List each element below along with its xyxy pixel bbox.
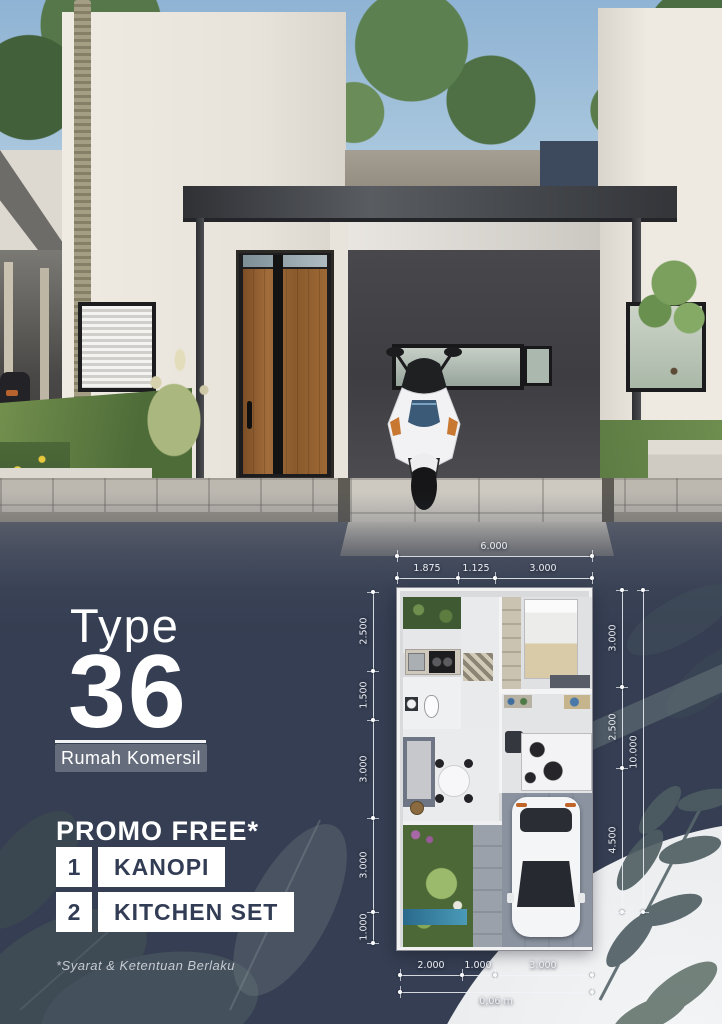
car-tail-light bbox=[565, 803, 576, 807]
dim-bottom-total: 0,06 m bbox=[479, 996, 512, 1007]
dim-top-total: 6.000 bbox=[480, 541, 507, 552]
dim-marker bbox=[616, 912, 628, 913]
plan-terrace-path bbox=[473, 825, 502, 947]
dim-marker bbox=[367, 592, 379, 593]
plan-car bbox=[512, 797, 580, 937]
dim-top-seg-3: 3.000 bbox=[529, 563, 556, 574]
dim-bottom-seg-2: 1.000 bbox=[464, 960, 491, 971]
plan-pond bbox=[403, 909, 467, 925]
flat-canopy-roof bbox=[183, 186, 677, 222]
front-door bbox=[236, 250, 334, 480]
dim-marker bbox=[397, 572, 398, 584]
dim-marker bbox=[367, 912, 379, 913]
dim-marker bbox=[367, 671, 379, 672]
plan-desk bbox=[564, 695, 590, 709]
plan-bed-2 bbox=[521, 733, 592, 791]
plan-bed-1 bbox=[524, 599, 578, 679]
carport-ceiling bbox=[346, 222, 600, 250]
car-tail-light bbox=[516, 803, 527, 807]
floor-plan bbox=[397, 588, 592, 950]
dim-marker bbox=[637, 912, 649, 913]
plan-toilet bbox=[424, 695, 439, 718]
dim-marker bbox=[616, 768, 628, 769]
dim-marker bbox=[616, 687, 628, 688]
car-rear-glass bbox=[520, 808, 572, 832]
driveway-ramp bbox=[340, 522, 614, 556]
dim-marker bbox=[592, 986, 593, 998]
plan-basket bbox=[410, 801, 424, 815]
promo-item-number: 1 bbox=[56, 847, 92, 887]
dim-marker bbox=[462, 969, 463, 981]
plan-wardrobe bbox=[501, 597, 521, 689]
door-transom-glass bbox=[243, 255, 327, 267]
dim-marker bbox=[495, 572, 496, 584]
motorcycle bbox=[376, 334, 472, 512]
house-render-photo bbox=[0, 0, 722, 648]
promo-item-row: 1 KANOPI bbox=[56, 847, 225, 887]
dim-left-seg-2: 1.500 bbox=[359, 681, 370, 708]
car-mirror bbox=[507, 893, 514, 903]
dim-line-top-total bbox=[397, 556, 592, 557]
plan-doormat bbox=[463, 653, 493, 681]
dim-marker bbox=[637, 590, 649, 591]
plan-washbasin bbox=[405, 697, 418, 711]
dim-marker bbox=[367, 720, 379, 721]
dim-marker bbox=[367, 818, 379, 819]
dim-line-left bbox=[373, 592, 374, 943]
dim-right-seg-1: 3.000 bbox=[608, 624, 619, 651]
plan-front-garden bbox=[403, 825, 473, 947]
property-promo-poster: Type 36 Rumah Komersil PROMO FREE* 1 KAN… bbox=[0, 0, 722, 1024]
dim-marker bbox=[592, 969, 593, 981]
small-tree bbox=[636, 248, 712, 388]
plan-bedroom-bench bbox=[550, 675, 590, 688]
dim-bottom-seg-3: 3.000 bbox=[529, 960, 556, 971]
dim-top-seg-2: 1.125 bbox=[462, 563, 489, 574]
door-black-stripe bbox=[273, 255, 283, 474]
street-curb bbox=[0, 512, 338, 522]
plan-kitchen-stove bbox=[429, 651, 455, 673]
dim-marker bbox=[458, 572, 459, 584]
dim-right-total: 10.000 bbox=[629, 735, 640, 768]
plan-dining-chair bbox=[464, 759, 473, 768]
dim-marker bbox=[495, 969, 496, 981]
dim-right-seg-3: 4.500 bbox=[608, 826, 619, 853]
door-handle bbox=[247, 401, 252, 429]
promo-item-label: KANOPI bbox=[98, 847, 225, 887]
dim-marker bbox=[400, 986, 401, 998]
dim-left-seg-1: 2.500 bbox=[359, 617, 370, 644]
pampas-grass bbox=[120, 330, 240, 480]
dim-marker bbox=[400, 969, 401, 981]
dim-marker bbox=[592, 572, 593, 584]
wooden-door-leaf bbox=[243, 269, 327, 474]
plan-dining-chair bbox=[435, 794, 444, 803]
carport-horizontal-window-small bbox=[524, 346, 552, 386]
promo-item-number: 2 bbox=[56, 892, 92, 932]
terms-disclaimer: *Syarat & Ketentuan Berlaku bbox=[56, 958, 235, 973]
promo-item-label: KITCHEN SET bbox=[98, 892, 294, 932]
category-badge: Rumah Komersil bbox=[55, 744, 207, 772]
plan-dining-chair bbox=[464, 794, 473, 803]
car-mirror bbox=[578, 893, 585, 903]
dim-left-seg-3: 3.000 bbox=[359, 755, 370, 782]
promo-item-row: 2 KITCHEN SET bbox=[56, 892, 294, 932]
dim-marker bbox=[397, 550, 398, 562]
car-windshield bbox=[517, 861, 575, 907]
dim-top-seg-1: 1.875 bbox=[413, 563, 440, 574]
plan-shelf bbox=[504, 695, 532, 708]
plan-wall bbox=[499, 597, 502, 793]
street-curb bbox=[614, 512, 722, 522]
dim-left-seg-5: 1.000 bbox=[359, 913, 370, 940]
dim-marker bbox=[367, 943, 379, 944]
dim-line-bottom-total bbox=[400, 992, 592, 993]
dim-marker bbox=[616, 590, 628, 591]
dim-marker bbox=[592, 550, 593, 562]
plan-dining-chair bbox=[435, 759, 444, 768]
type-number: 36 bbox=[68, 640, 188, 744]
dim-bottom-seg-1: 2.000 bbox=[417, 960, 444, 971]
plan-sofa-cushions bbox=[407, 741, 431, 799]
dim-line-right-outer bbox=[643, 590, 644, 912]
plan-kitchen-sink bbox=[408, 653, 425, 671]
dim-right-seg-2: 2.500 bbox=[608, 713, 619, 740]
dim-left-seg-4: 3.000 bbox=[359, 851, 370, 878]
promo-title: PROMO FREE* bbox=[56, 816, 259, 847]
plan-dining-table bbox=[438, 765, 470, 797]
badge-top-line bbox=[55, 740, 206, 743]
dim-line-right-inner bbox=[622, 590, 623, 912]
